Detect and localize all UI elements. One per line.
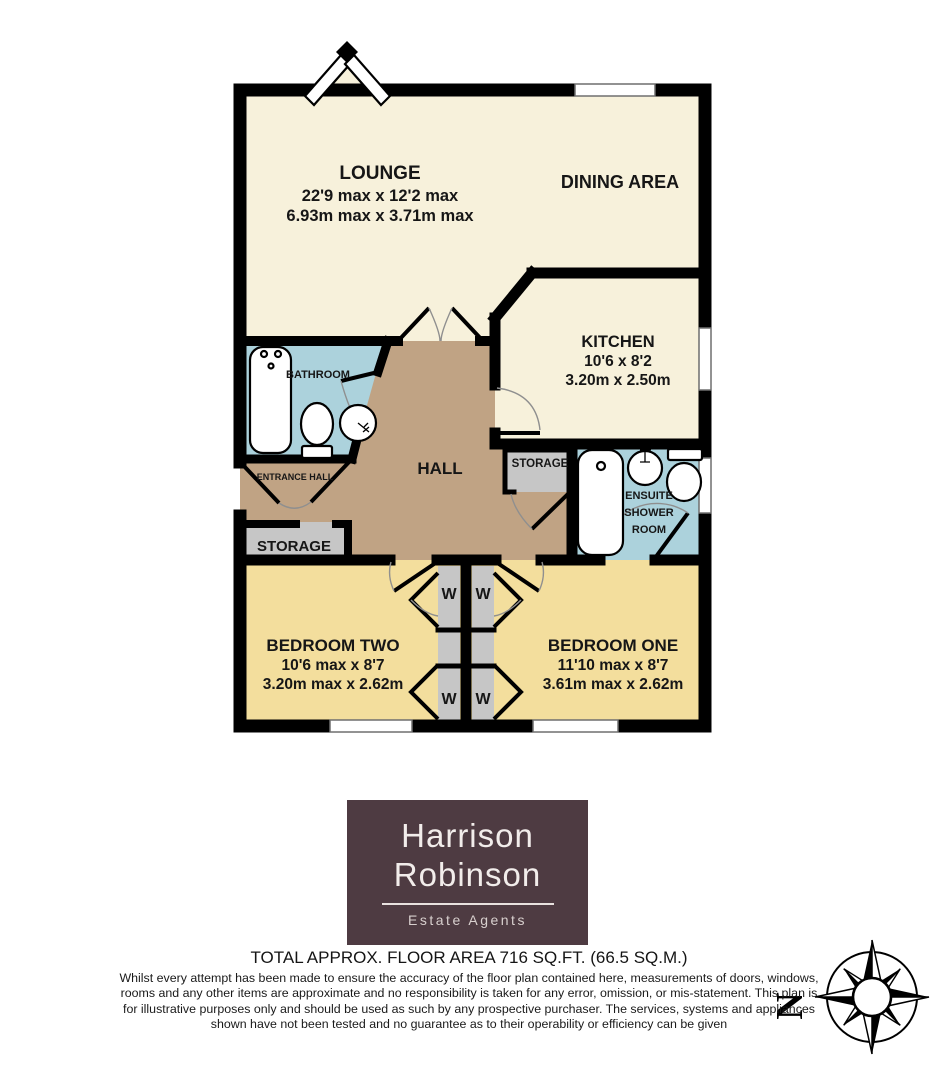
agency-name-line2: Robinson bbox=[394, 856, 541, 894]
wardrobe-w-label: W bbox=[475, 691, 491, 708]
wardrobe-w-label: W bbox=[441, 691, 457, 708]
bedroom-two-dims-metric: 3.20m max x 2.62m bbox=[263, 676, 403, 693]
total-floor-area-text: TOTAL APPROX. FLOOR AREA 716 SQ.FT. (66.… bbox=[0, 948, 938, 968]
bedroom-one-name: BEDROOM ONE bbox=[548, 636, 678, 655]
ensuite-name-line3: ROOM bbox=[632, 524, 666, 536]
agency-tagline: Estate Agents bbox=[408, 912, 527, 928]
floor-plan-page: LOUNGE 22'9 max x 12'2 max 6.93m max x 3… bbox=[0, 0, 938, 1080]
ensuite-name-line1: ENSUITE bbox=[625, 490, 673, 502]
entrance-hall-name: ENTRANCE HALL bbox=[257, 472, 334, 482]
agency-name-line1: Harrison bbox=[401, 817, 534, 855]
agency-logo: Harrison Robinson Estate Agents bbox=[347, 800, 588, 945]
logo-divider bbox=[382, 903, 554, 905]
disclaimer-text: Whilst every attempt has been made to en… bbox=[113, 971, 825, 1033]
bedroom-two-dims-imperial: 10'6 max x 8'7 bbox=[281, 657, 384, 674]
room-bedroom-one: BEDROOM ONE 11'10 max x 8'7 3.61m max x … bbox=[543, 636, 683, 693]
bedroom-two-name: BEDROOM TWO bbox=[266, 636, 399, 655]
wardrobe-w-label: W bbox=[475, 586, 491, 603]
dining-window bbox=[575, 84, 655, 96]
bedroom-one-dims-metric: 3.61m max x 2.62m bbox=[543, 676, 683, 693]
storage-entrance-name: STORAGE bbox=[257, 538, 331, 555]
dining-area-name: DINING AREA bbox=[561, 172, 679, 192]
lounge-name: LOUNGE bbox=[339, 163, 420, 184]
bathroom-sink-icon bbox=[340, 405, 376, 441]
bedroom-one-window bbox=[533, 720, 618, 732]
storage-hall-floor bbox=[505, 450, 572, 492]
kitchen-dims-imperial: 10'6 x 8'2 bbox=[584, 353, 652, 370]
bathroom-toilet-icon bbox=[301, 403, 333, 458]
room-bedroom-two: BEDROOM TWO 10'6 max x 8'7 3.20m max x 2… bbox=[263, 636, 403, 693]
storage-hall-name: STORAGE bbox=[512, 458, 569, 470]
lounge-dims-imperial: 22'9 max x 12'2 max bbox=[302, 187, 459, 205]
shower-tray-icon bbox=[578, 450, 623, 555]
hall-name: HALL bbox=[417, 459, 462, 478]
bathtub-icon bbox=[250, 347, 291, 453]
bedroom-one-dims-imperial: 11'10 max x 8'7 bbox=[558, 657, 669, 674]
ensuite-name-line2: SHOWER bbox=[624, 507, 674, 519]
kitchen-dims-metric: 3.20m x 2.50m bbox=[565, 372, 670, 389]
kitchen-window bbox=[699, 328, 711, 390]
bathroom-name: BATHROOM bbox=[286, 369, 350, 381]
floor-fills bbox=[240, 52, 705, 726]
wardrobe-w-label: W bbox=[441, 586, 457, 603]
ensuite-sink-icon bbox=[628, 450, 662, 485]
kitchen-name: KITCHEN bbox=[581, 333, 654, 351]
bedroom-two-window bbox=[330, 720, 412, 732]
lounge-dims-metric: 6.93m max x 3.71m max bbox=[286, 207, 474, 225]
